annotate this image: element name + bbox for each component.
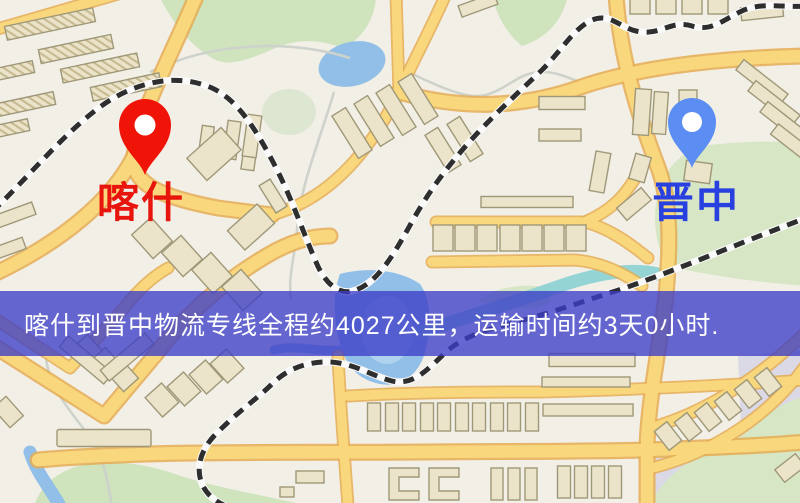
route-banner: 喀什到晋中物流专线全程约4027公里，运输时间约3天0小时.: [0, 291, 800, 356]
route-banner-text: 喀什到晋中物流专线全程约4027公里，运输时间约3天0小时.: [0, 306, 719, 342]
origin-pin-dot: [135, 115, 156, 136]
origin-label: 喀什: [97, 179, 185, 226]
destination-pin-dot: [682, 112, 702, 132]
destination-label: 晋中: [652, 179, 740, 226]
map-canvas[interactable]: 喀什 晋中: [0, 0, 800, 503]
map-view: 喀什 晋中 喀什到晋中物流专线全程约4027公里，运输时间约3天0小时.: [0, 0, 800, 503]
